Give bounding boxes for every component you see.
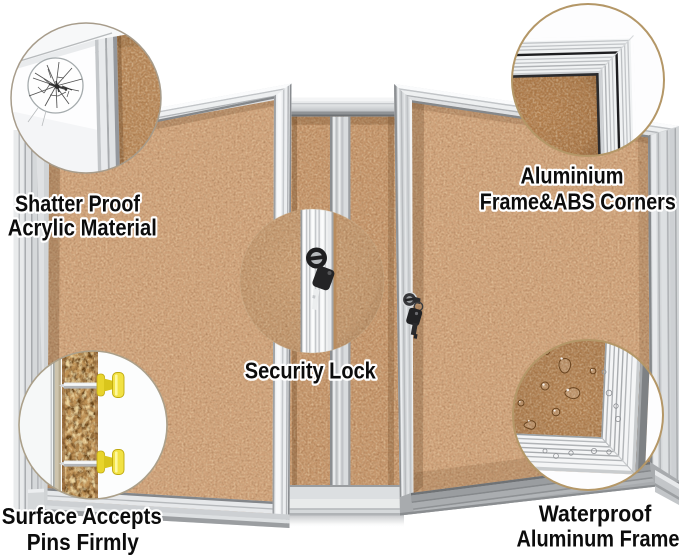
svg-text:Frame&ABS Corners: Frame&ABS Corners xyxy=(480,189,676,215)
svg-text:Waterproof: Waterproof xyxy=(539,501,652,527)
svg-text:Security Lock: Security Lock xyxy=(245,358,377,384)
svg-text:Aluminum Frame: Aluminum Frame xyxy=(517,526,679,552)
svg-text:Pins Firmly: Pins Firmly xyxy=(27,529,139,555)
svg-text:Acrylic Material: Acrylic Material xyxy=(8,215,157,241)
svg-text:Shatter Proof: Shatter Proof xyxy=(15,191,140,217)
svg-text:Surface Accepts: Surface Accepts xyxy=(2,503,162,529)
svg-text:Aluminium: Aluminium xyxy=(521,163,624,189)
